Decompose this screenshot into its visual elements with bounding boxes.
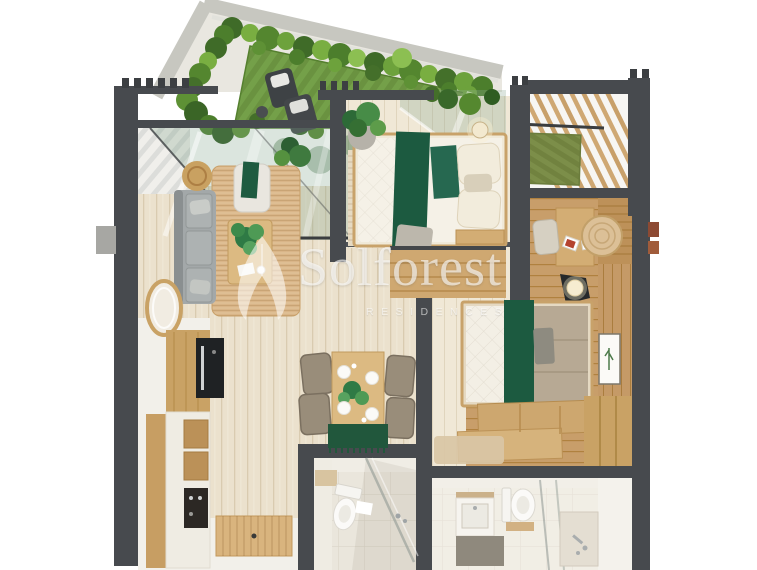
plate [338, 402, 351, 415]
plate [366, 408, 379, 421]
oven [196, 338, 224, 398]
armchair [234, 161, 270, 212]
toilet [502, 488, 535, 531]
shower-fitting [396, 514, 401, 519]
side-table [256, 106, 268, 118]
cooktop [184, 488, 208, 528]
entry-mat [216, 516, 292, 556]
utility-box [96, 226, 116, 254]
floor-plan-graphic [0, 0, 757, 570]
pillow [457, 189, 502, 230]
desk-chair [532, 219, 559, 255]
bathroom-1 [314, 458, 418, 570]
wardrobe [390, 246, 506, 298]
green-runner [504, 300, 534, 418]
green-table-runner [328, 424, 388, 448]
cushion [533, 328, 555, 365]
wall-bathroom2-top [430, 466, 632, 478]
wall-cabinet [315, 470, 337, 486]
plate [366, 372, 379, 385]
coffee-table [228, 220, 272, 284]
plate [338, 366, 351, 379]
drawer [184, 420, 208, 448]
dining-chair [385, 397, 415, 438]
floor-plan-render: Solforest RESIDENCES [0, 0, 757, 570]
rug [434, 436, 504, 464]
wardrobe [584, 396, 632, 466]
pendant-light [472, 122, 488, 138]
rust-fixture [648, 241, 659, 254]
dark-floor-mat [456, 536, 504, 566]
wall-left [114, 88, 138, 566]
dining-chair [384, 355, 415, 397]
wall-center [416, 286, 432, 460]
rattan-pouf [182, 161, 212, 191]
vanity-sink [456, 492, 494, 536]
dining-chair [300, 353, 334, 396]
counter-side-panel [146, 414, 168, 568]
wall-balcony-top [528, 80, 628, 94]
wall-art [599, 334, 620, 384]
dining-chair [299, 393, 332, 435]
wall-bathrooms-mid [416, 458, 432, 570]
bench [456, 230, 504, 244]
rust-fixture [648, 222, 659, 237]
wall-right [632, 196, 650, 570]
round-rug [582, 216, 622, 256]
sofa [174, 190, 216, 304]
drawer [184, 452, 208, 480]
wall-bathroom1-left [298, 458, 314, 570]
wall-balcony-bottom [516, 188, 632, 198]
